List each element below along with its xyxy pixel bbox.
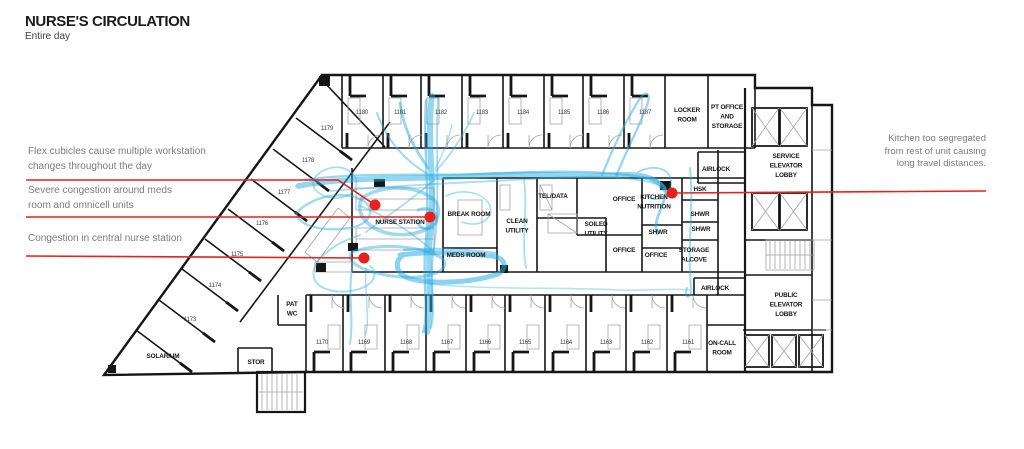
room-number: 1186 — [597, 110, 610, 116]
room-label: OFFICE — [613, 196, 636, 203]
room-label: LOCKERROOM — [674, 107, 701, 124]
room-number: 1182 — [435, 110, 448, 116]
room-number: 1163 — [600, 340, 613, 346]
room-number: 1185 — [558, 110, 571, 116]
annotation-leader-line — [26, 256, 364, 258]
room-numbers-layer: 1180118111821183118411851186118711791178… — [184, 110, 695, 346]
room-label: OFFICE — [613, 247, 636, 254]
room-label: PUBLICELEVATORLOBBY — [770, 292, 803, 318]
room-label: HSK — [693, 186, 707, 193]
room-number: 1184 — [517, 110, 530, 116]
room-label: NURSE STATION — [375, 219, 425, 226]
circulation-path — [377, 113, 426, 173]
room-number: 1166 — [479, 340, 492, 346]
room-label: SOILEDUTILITY — [584, 221, 608, 238]
room-label: SOLARIUM — [147, 353, 180, 360]
room-number: 1180 — [356, 110, 369, 116]
room-number: 1173 — [184, 317, 197, 323]
room-label: MEDS ROOM — [447, 252, 486, 259]
annotation-nurse-station-congestion: Congestion in central nurse station — [28, 231, 182, 246]
room-label: TEL/DATA — [538, 193, 568, 200]
room-number: 1162 — [641, 340, 654, 346]
circulation-path — [430, 284, 690, 290]
room-label: SHWR — [649, 229, 668, 236]
annotation-line: from rest of unit causing — [885, 146, 986, 159]
annotation-dot — [667, 188, 678, 199]
room-label: AIRLOCK — [702, 166, 731, 173]
room-label: SHWR — [692, 226, 711, 233]
room-label: SHWR — [691, 211, 710, 218]
circulation-path — [366, 268, 368, 334]
room-number: 1165 — [519, 340, 532, 346]
annotation-leader-line — [672, 191, 986, 193]
room-label: CLEANUTILITY — [505, 218, 529, 235]
room-number: 1179 — [321, 126, 334, 132]
room-label: SERVICEELEVATORLOBBY — [770, 153, 803, 179]
annotation-line: Severe congestion around meds — [28, 183, 172, 198]
annotation-line: Congestion in central nurse station — [28, 231, 182, 246]
floor-plan: 1180118111821183118411851186118711791178… — [0, 0, 1024, 449]
room-number: 1164 — [560, 340, 573, 346]
room-number: 1167 — [441, 340, 454, 346]
room-number: 1178 — [302, 158, 315, 164]
room-number: 1187 — [639, 110, 652, 116]
annotation-dot — [425, 212, 436, 223]
room-label: STORAGEALCOVE — [679, 247, 710, 264]
room-label: AIRLOCK — [701, 285, 730, 292]
room-label: BREAK ROOM — [448, 211, 491, 218]
annotation-dot — [370, 200, 381, 211]
annotation-meds-congestion: Severe congestion around medsroom and om… — [28, 183, 172, 213]
annotation-line: room and omnicell units — [28, 198, 172, 213]
room-number: 1170 — [316, 340, 329, 346]
annotation-flex-cubicles: Flex cubicles cause multiple workstation… — [28, 144, 206, 174]
room-number: 1176 — [256, 221, 269, 227]
annotation-kitchen-segregated: Kitchen too segregatedfrom rest of unit … — [885, 133, 986, 171]
room-label: PT OFFICEANDSTORAGE — [711, 104, 744, 130]
room-label: STOR — [247, 359, 265, 366]
room-number: 1183 — [476, 110, 489, 116]
circulation-path — [350, 268, 352, 344]
room-number: 1177 — [278, 190, 291, 196]
annotation-line: long travel distances. — [885, 158, 986, 171]
room-label: ON-CALLROOM — [708, 340, 736, 357]
circulation-path — [686, 168, 691, 297]
annotation-line: changes throughout the day — [28, 159, 206, 174]
room-label: PATWC — [286, 301, 298, 318]
room-label: OFFICE — [645, 252, 668, 259]
room-number: 1161 — [682, 340, 695, 346]
annotation-line: Kitchen too segregated — [885, 133, 986, 146]
room-number: 1174 — [209, 283, 222, 289]
room-number: 1181 — [394, 110, 407, 116]
annotation-line: Flex cubicles cause multiple workstation — [28, 144, 206, 159]
room-number: 1169 — [358, 340, 371, 346]
room-number: 1168 — [400, 340, 413, 346]
circulation-path — [446, 192, 491, 224]
annotation-dot — [359, 253, 370, 264]
